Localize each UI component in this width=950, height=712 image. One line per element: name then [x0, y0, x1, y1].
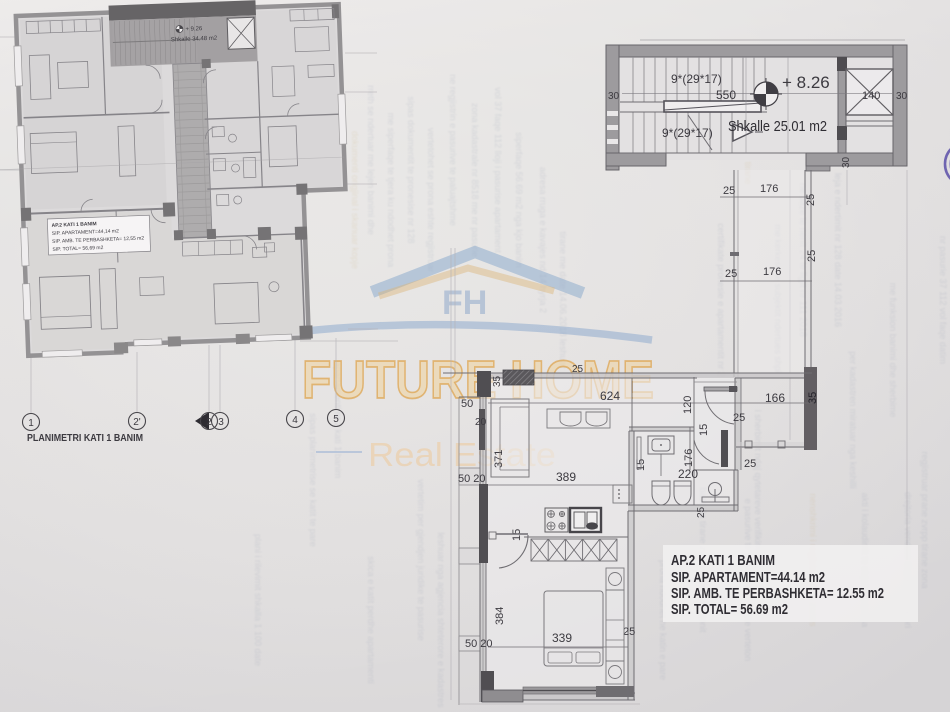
svg-text:9*(29*17): 9*(29*17) — [662, 126, 713, 140]
svg-text:25: 25 — [806, 250, 818, 262]
svg-text:skica e katit perdhe apartamen: skica e katit perdhe apartamenti — [366, 556, 376, 684]
svg-text:30: 30 — [608, 91, 620, 102]
svg-text:SIP. TOTAL= 56.69 m2: SIP. TOTAL= 56.69 m2 — [671, 601, 788, 618]
svg-text:i sherbimit ndaj qytetareve ve: i sherbimit ndaj qytetareve verifikim — [753, 410, 763, 551]
svg-text:25: 25 — [696, 506, 707, 518]
svg-text:176: 176 — [683, 449, 695, 467]
svg-text:plani i rilevimit shkalla 1 10: plani i rilevimit shkalla 1 100 date — [253, 534, 263, 666]
svg-text:9*(29*17): 9*(29*17) — [671, 72, 722, 86]
svg-text:220: 220 — [678, 467, 698, 481]
svg-text:339: 339 — [552, 631, 572, 645]
svg-text:25: 25 — [572, 364, 584, 375]
svg-text:20: 20 — [475, 417, 487, 428]
svg-text:sipas planimetrise se katit te: sipas planimetrise se katit te pare — [308, 413, 318, 547]
svg-text:384: 384 — [494, 607, 506, 625]
svg-text:25: 25 — [723, 185, 735, 197]
svg-text:me funksion banimi dhe sherbim: me funksion banimi dhe sherbime — [888, 283, 898, 418]
svg-text:+ 9.26: + 9.26 — [185, 26, 203, 33]
svg-text:120: 120 — [682, 396, 694, 414]
svg-text:Shkalle 25.01 m2: Shkalle 25.01 m2 — [728, 118, 827, 135]
svg-text:regjistruar prane zvrpp tirane: regjistruar prane zvrpp tirane zona — [920, 451, 930, 588]
svg-text:30: 30 — [841, 156, 852, 168]
svg-text:15: 15 — [511, 529, 523, 541]
svg-text:624: 624 — [600, 389, 620, 403]
svg-text:rreth se ndertuar me lejen ban: rreth se ndertuar me lejen banimi dhe — [366, 85, 376, 235]
svg-text:SIP. AMB. TE PERBASHKETA= 12.5: SIP. AMB. TE PERBASHKETA= 12.55 m2 — [671, 585, 884, 602]
svg-text:per kadastren miratuar nga kes: per kadastren miratuar nga keshilli — [848, 351, 858, 489]
svg-text:389: 389 — [556, 470, 576, 484]
svg-text:sipas dokumentit te pronesise: sipas dokumentit te pronesise nr 128 — [406, 96, 416, 243]
svg-text:2': 2' — [133, 417, 141, 428]
svg-text:25: 25 — [744, 458, 756, 470]
svg-text:vol 37 faqe 112 lloji i pasuri: vol 37 faqe 112 lloji i pasurise apartam… — [493, 87, 503, 253]
svg-text:550: 550 — [716, 88, 736, 102]
svg-text:dokumenti origjinal i skanuar: dokumenti origjinal i skanuar kopje — [350, 131, 360, 269]
svg-text:leshuar nga agjencia shteteror: leshuar nga agjencia shteterore e kadast… — [436, 532, 446, 708]
svg-text:25: 25 — [733, 412, 745, 424]
svg-text:3: 3 — [218, 417, 224, 428]
svg-text:5: 5 — [333, 414, 339, 425]
svg-text:vertetim per gjendjen juridike: vertetim per gjendjen juridike te pasuri… — [416, 479, 426, 641]
svg-text:25: 25 — [725, 268, 737, 280]
svg-text:4: 4 — [292, 415, 298, 426]
svg-text:zona kadastrale nr 8518 me nr: zona kadastrale nr 8518 me nr pasurie — [470, 103, 480, 257]
svg-text:176: 176 — [760, 183, 778, 195]
svg-text:+ 8.26: + 8.26 — [782, 73, 830, 92]
svg-text:15: 15 — [698, 424, 710, 436]
svg-text:140: 140 — [862, 90, 880, 102]
svg-text:176: 176 — [763, 266, 781, 278]
svg-text:FH: FH — [442, 284, 487, 322]
svg-text:30: 30 — [896, 91, 908, 102]
svg-text:vertetohet se prona eshte regj: vertetohet se prona eshte regjistruar — [426, 128, 436, 273]
svg-text:35: 35 — [492, 375, 503, 387]
svg-text:SIP. APARTAMENT=44.14 m2: SIP. APARTAMENT=44.14 m2 — [671, 569, 825, 586]
svg-text:35: 35 — [807, 392, 819, 404]
svg-text:1: 1 — [28, 418, 34, 429]
svg-text:nr pasurie 37 112 vol faqe dat: nr pasurie 37 112 vol faqe datim — [938, 236, 948, 364]
svg-text:tirane me date 14.06.2018 lesh: tirane me date 14.06.2018 leshuar — [558, 231, 568, 368]
svg-text:me siperfaqe te tjera ku ndodh: me siperfaqe te tjera ku ndodhet prona — [386, 113, 396, 268]
svg-text:leja e ndertimit nr 128 date 1: leja e ndertimit nr 128 date 14.03.2016 — [833, 173, 843, 327]
svg-text:50 20: 50 20 — [465, 638, 493, 650]
svg-text:ne regjistrin e pasurive te pa: ne regjistrin e pasurive te paluajtshme — [448, 74, 458, 226]
svg-text:AP.2 KATI 1 BANIM: AP.2 KATI 1 BANIM — [671, 552, 775, 569]
svg-text:PLANIMETRI KATI 1 BANIM: PLANIMETRI KATI 1 BANIM — [27, 433, 143, 444]
svg-text:siperfaqe 56.69 m2 nga kjo ban: siperfaqe 56.69 m2 nga kjo banim — [514, 132, 524, 268]
svg-text:certifikate pronesie e apartam: certifikate pronesie e apartamentit nr 2 — [716, 223, 726, 377]
svg-text:25: 25 — [805, 194, 817, 206]
svg-text:50: 50 — [461, 398, 473, 410]
svg-text:371: 371 — [493, 450, 505, 468]
svg-text:25: 25 — [623, 626, 635, 638]
svg-text:50 20: 50 20 — [458, 473, 486, 485]
